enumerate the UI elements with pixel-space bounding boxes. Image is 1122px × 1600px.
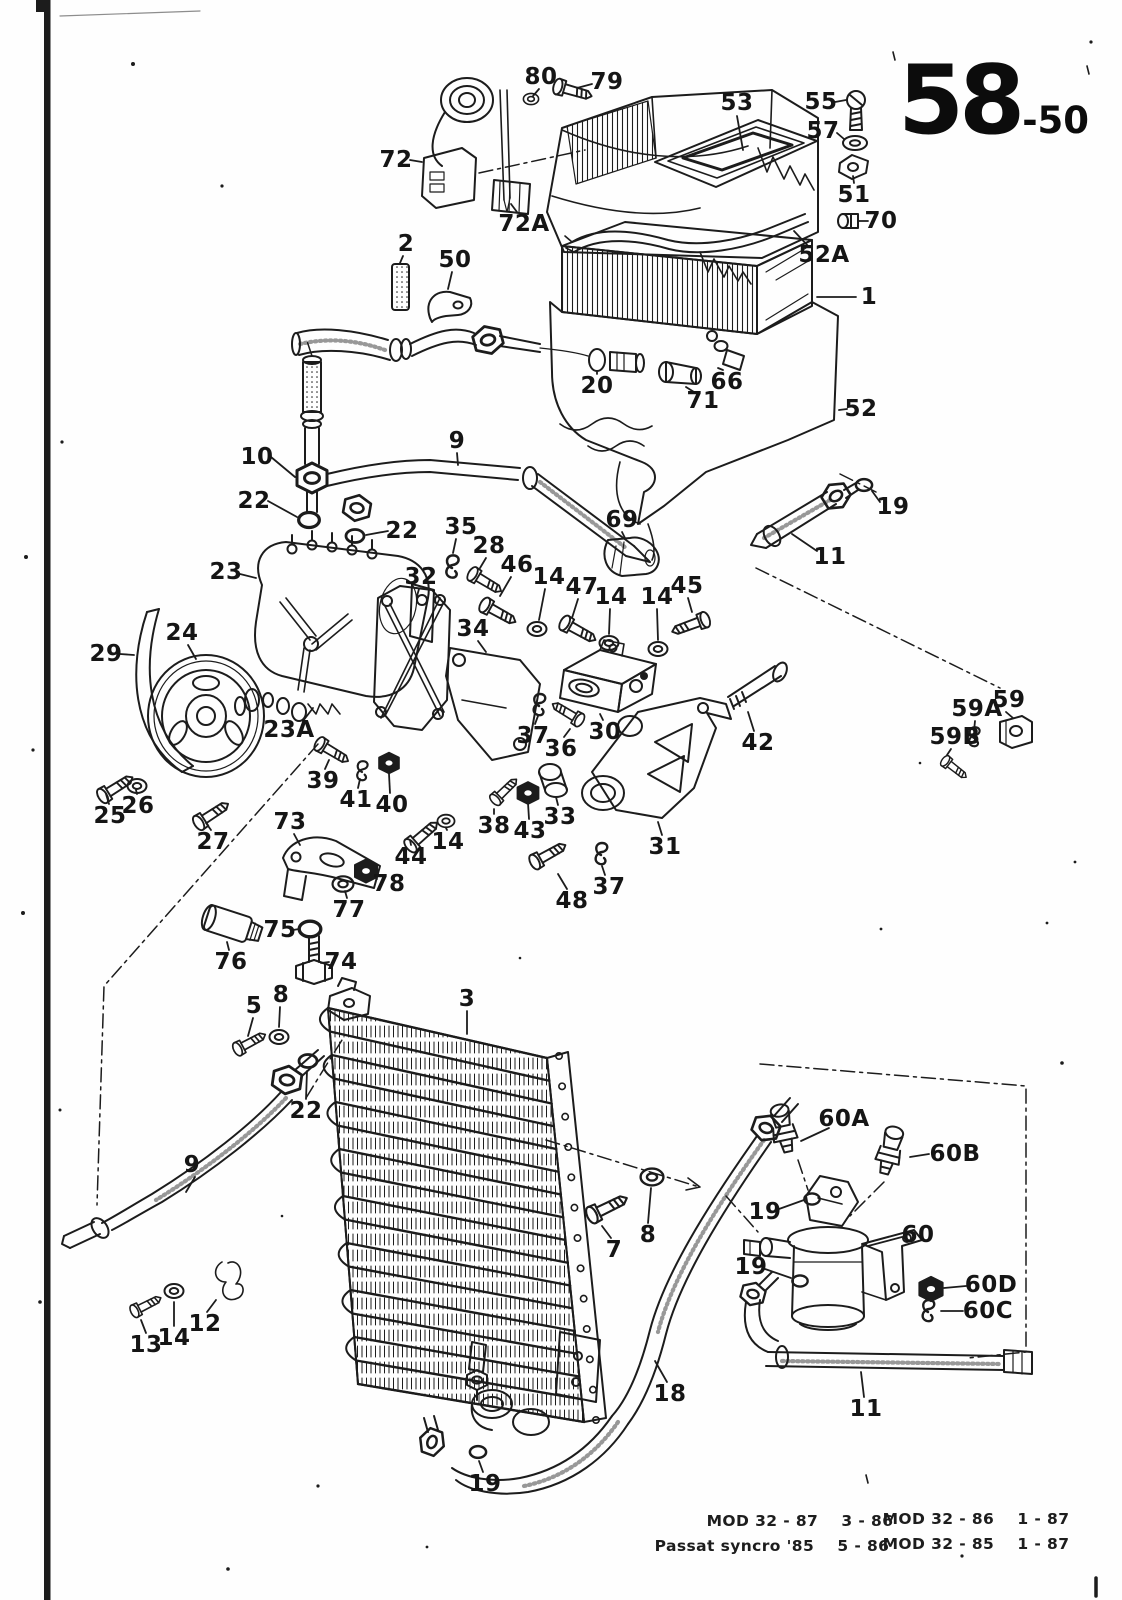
part-label-8: 8 <box>273 982 290 1008</box>
part-label-38: 38 <box>477 813 510 839</box>
part-label-75: 75 <box>263 917 296 943</box>
part-label-9: 9 <box>449 428 466 454</box>
part-label-60B: 60B <box>929 1141 980 1167</box>
part-label-51: 51 <box>837 182 870 208</box>
part-label-73: 73 <box>273 809 306 835</box>
part-label-18: 18 <box>653 1381 686 1407</box>
footer-code-0: MOD 32 - 87 3 - 86 <box>707 1512 894 1530</box>
part-label-59B: 59B <box>929 724 980 750</box>
part-label-24: 24 <box>165 620 198 646</box>
part-label-30: 30 <box>588 719 621 745</box>
part-label-52A: 52A <box>798 242 849 268</box>
part-label-34: 34 <box>456 616 489 642</box>
part-label-80: 80 <box>524 64 557 90</box>
part-label-2: 2 <box>398 231 415 257</box>
condenser <box>320 978 606 1435</box>
page-number-group: 58 <box>898 46 1020 156</box>
part-label-74: 74 <box>324 949 357 975</box>
part-label-19: 19 <box>734 1254 767 1280</box>
part-label-19: 19 <box>748 1199 781 1225</box>
thermostat <box>422 78 530 214</box>
page-number: 58 -50 <box>898 46 1089 156</box>
part-label-11: 11 <box>849 1396 882 1422</box>
part-label-3: 3 <box>459 986 476 1012</box>
part-label-78: 78 <box>372 871 405 897</box>
part-label-14: 14 <box>532 564 565 590</box>
scanned-manual-page: 8079535557517052A7272A250120667152691911… <box>0 0 1122 1600</box>
part-label-32: 32 <box>404 564 437 590</box>
part-label-77: 77 <box>332 897 365 923</box>
part-label-14: 14 <box>157 1325 190 1351</box>
drain-hose <box>565 214 808 252</box>
part-label-14: 14 <box>431 829 464 855</box>
part-label-60: 60 <box>901 1222 934 1248</box>
part-label-50: 50 <box>438 247 471 273</box>
part-label-71: 71 <box>686 388 719 414</box>
right-hose <box>751 478 872 549</box>
part-label-36: 36 <box>544 736 577 762</box>
part-label-69: 69 <box>605 507 638 533</box>
part-label-72A: 72A <box>498 211 549 237</box>
part-label-37: 37 <box>592 874 625 900</box>
footer-code-2: Passat syncro '85 5 - 86 <box>655 1537 890 1555</box>
part-label-14: 14 <box>594 584 627 610</box>
part-label-60D: 60D <box>965 1272 1018 1298</box>
part-label-8: 8 <box>640 1222 657 1248</box>
part-label-29: 29 <box>89 641 122 667</box>
part-label-79: 79 <box>590 69 623 95</box>
page-border <box>36 0 200 1600</box>
part-label-59A: 59A <box>951 696 1002 722</box>
part-label-60A: 60A <box>818 1106 869 1132</box>
part-label-12: 12 <box>188 1311 221 1337</box>
part-label-40: 40 <box>375 792 408 818</box>
part-label-14: 14 <box>640 584 673 610</box>
part-label-53: 53 <box>720 90 753 116</box>
part-label-19: 19 <box>468 1471 501 1497</box>
part-label-55: 55 <box>804 89 837 115</box>
part-label-46: 46 <box>500 552 533 578</box>
part-label-43: 43 <box>513 818 546 844</box>
part-label-11: 11 <box>813 544 846 570</box>
part-label-10: 10 <box>240 444 273 470</box>
part-label-19: 19 <box>876 494 909 520</box>
part-label-33: 33 <box>543 804 576 830</box>
part-label-31: 31 <box>648 834 681 860</box>
part-label-9: 9 <box>184 1152 201 1178</box>
part-label-23A: 23A <box>263 717 314 743</box>
part-label-23: 23 <box>209 559 242 585</box>
bolt-7-washer-8 <box>584 1169 664 1226</box>
compressor <box>95 531 434 832</box>
footer-code-1: MOD 32 - 86 1 - 87 <box>883 1510 1070 1528</box>
part-label-45: 45 <box>670 573 703 599</box>
part-label-48: 48 <box>555 888 588 914</box>
part-label-44: 44 <box>394 844 427 870</box>
part-label-5: 5 <box>246 993 263 1019</box>
parts-diagram-artwork <box>0 0 1122 1600</box>
expansion-valve <box>297 338 372 543</box>
part-label-76: 76 <box>214 949 247 975</box>
footer-code-3: MOD 32 - 85 1 - 87 <box>883 1535 1070 1553</box>
page-number-subsection: -50 <box>1022 99 1089 142</box>
part-label-42: 42 <box>741 730 774 756</box>
part-label-22: 22 <box>289 1098 322 1124</box>
part-label-72: 72 <box>379 147 412 173</box>
part-label-20: 20 <box>580 373 613 399</box>
part-label-22: 22 <box>237 488 270 514</box>
part-label-60C: 60C <box>963 1298 1013 1324</box>
part-label-70: 70 <box>864 208 897 234</box>
part-label-26: 26 <box>121 793 154 819</box>
part-label-22: 22 <box>385 518 418 544</box>
part-label-7: 7 <box>606 1237 623 1263</box>
part-label-41: 41 <box>339 787 372 813</box>
upper-pipe <box>292 323 744 384</box>
part-label-39: 39 <box>306 768 339 794</box>
part-label-1: 1 <box>861 284 878 310</box>
part-label-27: 27 <box>196 829 229 855</box>
part-label-57: 57 <box>806 118 839 144</box>
part-label-52: 52 <box>844 396 877 422</box>
